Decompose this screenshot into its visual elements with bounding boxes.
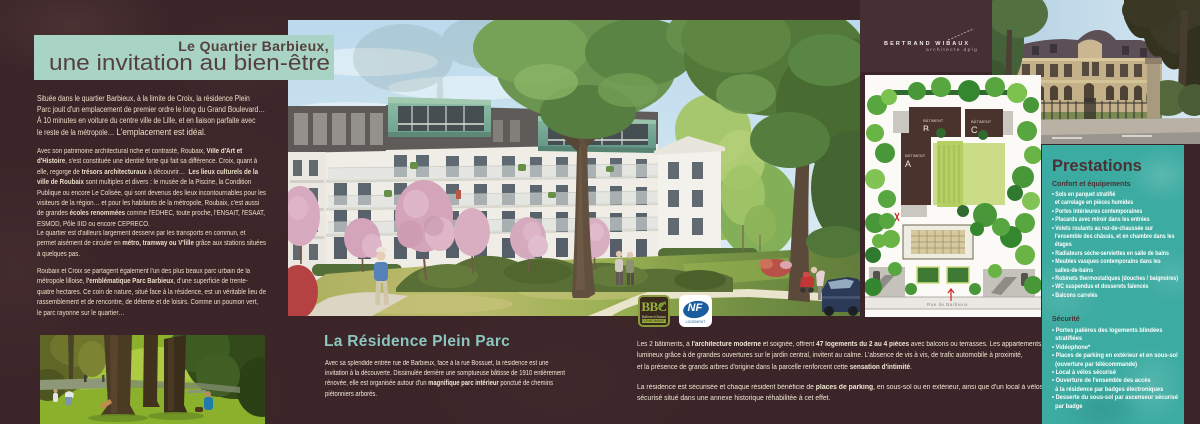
svg-text:BÂTIMENT: BÂTIMENT <box>923 118 944 123</box>
svg-text:BÂTIMENT: BÂTIMENT <box>905 153 926 158</box>
svg-text:A: A <box>905 159 911 169</box>
svg-text:BÂTIMENT: BÂTIMENT <box>971 119 992 124</box>
svg-text:Rue de Barbieux: Rue de Barbieux <box>927 302 968 307</box>
svg-text:C: C <box>971 125 978 135</box>
